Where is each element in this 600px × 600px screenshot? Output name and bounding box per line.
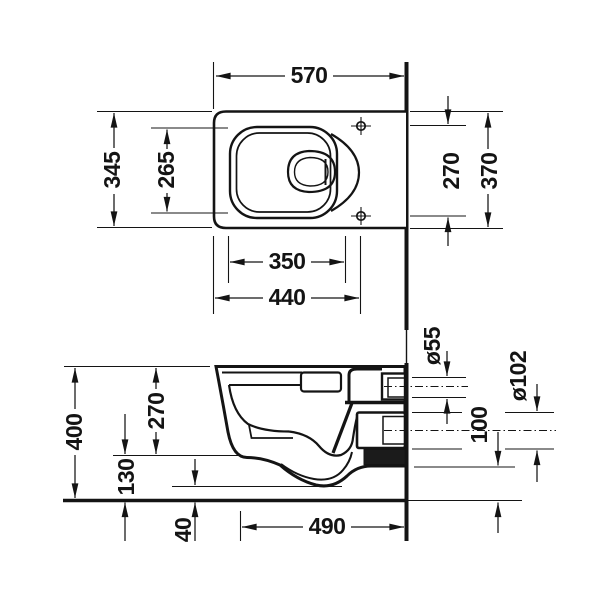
dim-400-label: 400 (61, 414, 87, 451)
dim-265-label: 265 (153, 151, 179, 189)
dim-350-label: 350 (269, 248, 306, 274)
dim-130-label: 130 (113, 459, 139, 496)
dim-40-label: 40 (170, 518, 196, 543)
mounting-bracket (364, 450, 405, 465)
side-view: 400 270 130 40 490 (61, 326, 556, 542)
dim-370-label: 370 (476, 153, 502, 190)
dim-100 (414, 432, 515, 533)
dim-270-side-label: 270 (143, 393, 169, 430)
dim-345-label: 345 (99, 151, 125, 189)
dim-100-label: 100 (466, 407, 492, 444)
dim-inlet-diameter-label: ø55 (419, 326, 445, 365)
dim-490-label: 490 (309, 513, 346, 539)
technical-drawing: 570 345 265 270 (0, 0, 600, 600)
dim-270-top-label: 270 (438, 153, 464, 190)
drawing-svg: 570 345 265 270 (0, 0, 600, 600)
toilet-plan-outline (214, 112, 406, 229)
dim-outlet-diameter-label: ø102 (505, 351, 531, 401)
top-view: 570 345 265 270 (97, 62, 503, 314)
dim-440-label: 440 (269, 284, 306, 310)
seat-hinge (301, 373, 341, 392)
dim-570-label: 570 (291, 62, 328, 88)
outlet-socket-outer (357, 413, 405, 449)
